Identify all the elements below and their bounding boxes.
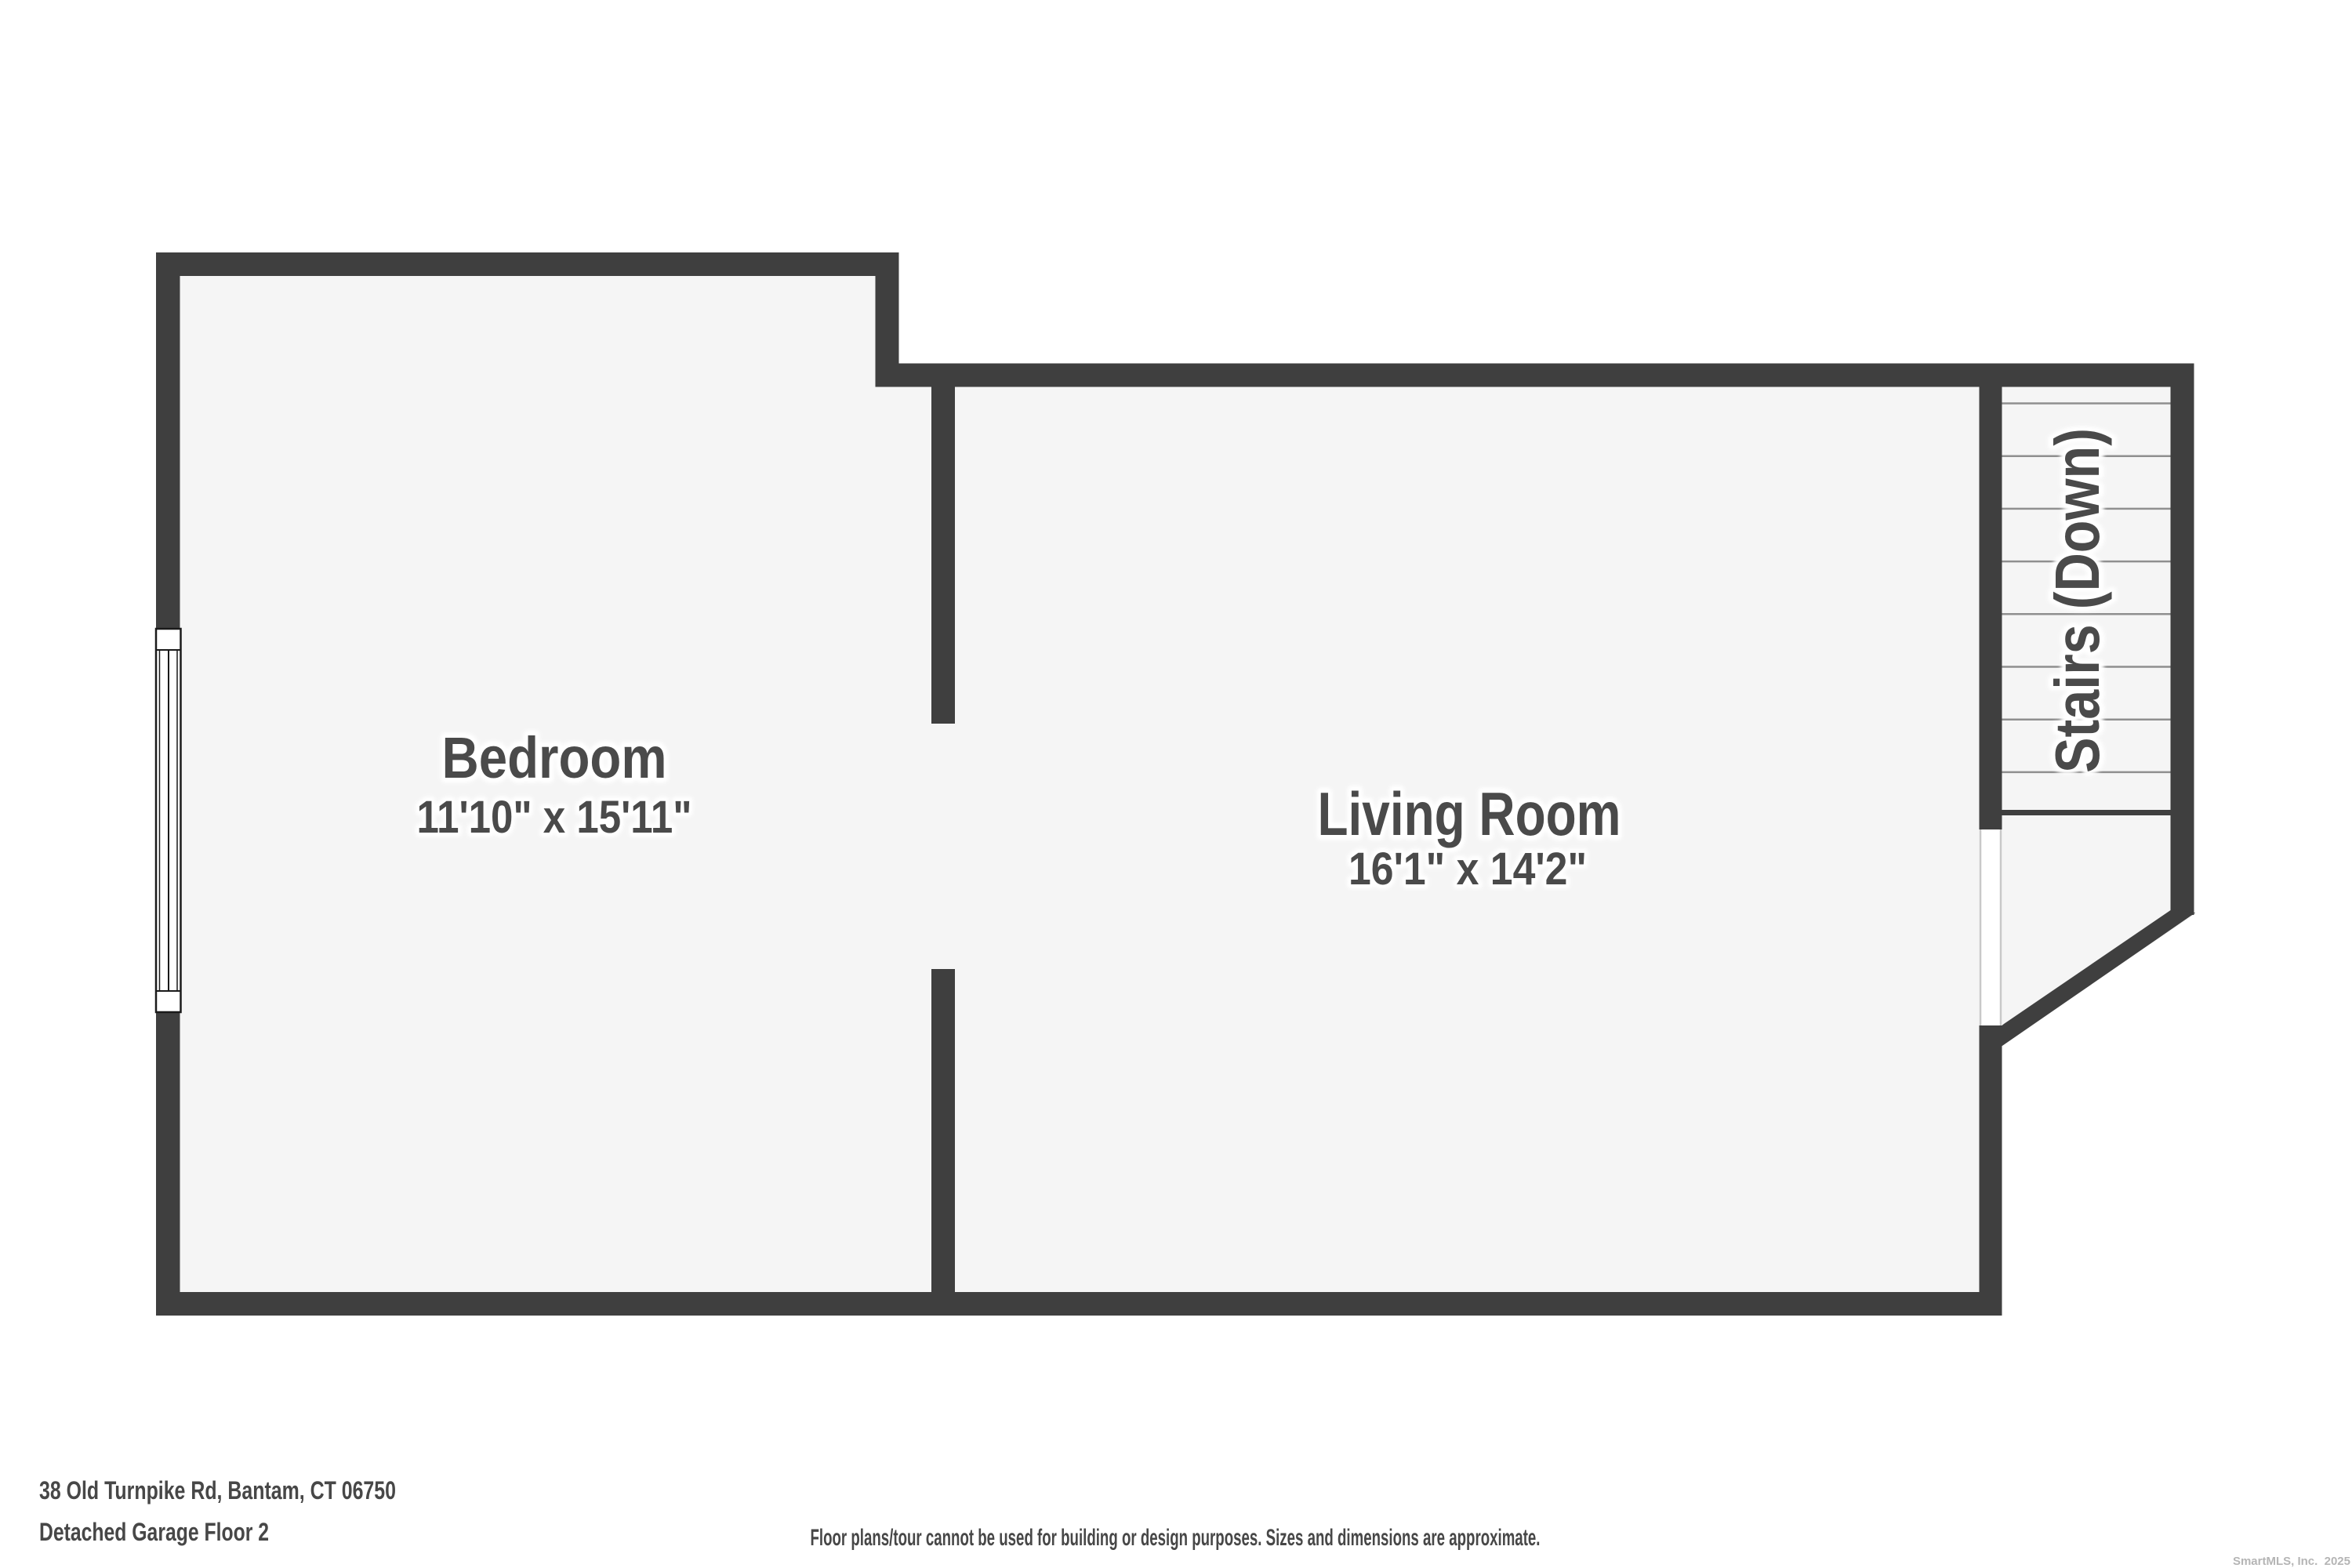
svg-text:16'1" x 14'2": 16'1" x 14'2" (1348, 844, 1587, 895)
svg-text:Stairs (Down): Stairs (Down) (2042, 428, 2112, 773)
svg-text:11'10" x 15'11": 11'10" x 15'11" (417, 792, 692, 843)
svg-text:Bedroom: Bedroom (442, 725, 667, 790)
svg-text:Detached Garage Floor 2: Detached Garage Floor 2 (39, 1518, 269, 1546)
svg-text:Floor plans/tour cannot be use: Floor plans/tour cannot be used for buil… (811, 1525, 1541, 1551)
svg-text:Living Room: Living Room (1318, 779, 1621, 848)
svg-text:38 Old Turnpike Rd, Bantam, CT: 38 Old Turnpike Rd, Bantam, CT 06750 (39, 1476, 396, 1504)
svg-text:SmartMLS, Inc. 2025: SmartMLS, Inc. 2025 (2233, 1555, 2350, 1568)
